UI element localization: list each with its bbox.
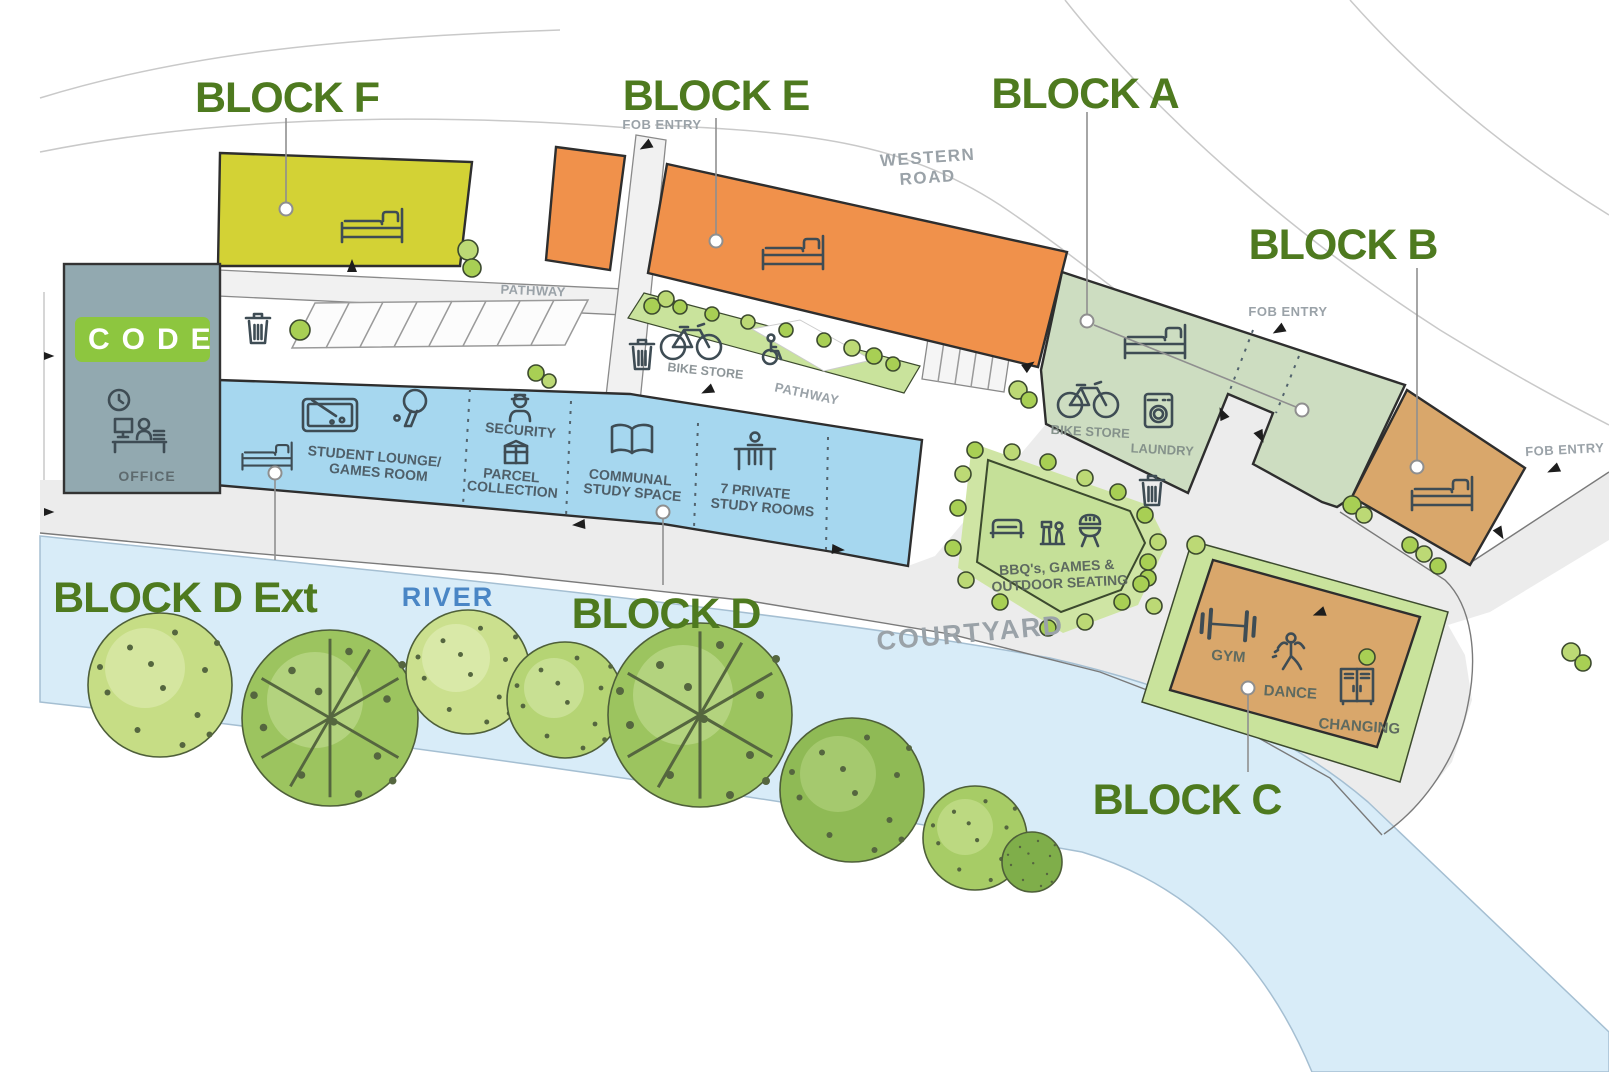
fob-entry-label: FOB ENTRY [622,117,701,132]
block-f-label: BLOCK F [195,74,379,122]
fob-entry-label: FOB ENTRY [1248,304,1327,319]
block-f-building [218,153,472,266]
tree [608,623,792,807]
trash-icon [1140,476,1164,505]
tree [507,642,623,758]
block-b-label: BLOCK B [1249,221,1438,269]
block-e-label: BLOCK E [623,72,810,120]
office-building [64,264,220,493]
western-road-label: WESTERN [879,145,976,171]
block-d-ext-label: BLOCK D Ext [53,574,317,622]
code-logo-text: CODE [88,323,223,356]
tree [88,613,232,757]
tree [780,718,924,862]
trash-icon [630,340,654,369]
western-road-label: ROAD [899,166,956,189]
fob-entry-label: FOB ENTRY [1525,440,1605,459]
block-e-annex-building [546,147,625,270]
trash-icon [246,314,270,343]
block-a-label: BLOCK A [991,70,1178,118]
office-label: OFFICE [118,468,175,484]
river-label: RIVER [402,582,495,612]
parking-area [292,300,588,348]
block-c-label: BLOCK C [1093,776,1282,824]
bike-store-label: BIKE STORE [667,360,744,382]
code-logo: CODE [75,317,223,362]
tree [242,630,418,806]
site-map-canvas: CODE [0,0,1609,1072]
tree [1002,832,1062,892]
gym-label: GYM [1211,647,1246,666]
block-d-label: BLOCK D [572,590,761,638]
site-map: CODE [0,0,1609,1072]
pathway-label: PATHWAY [500,282,566,300]
pathway-label: PATHWAY [773,379,840,407]
